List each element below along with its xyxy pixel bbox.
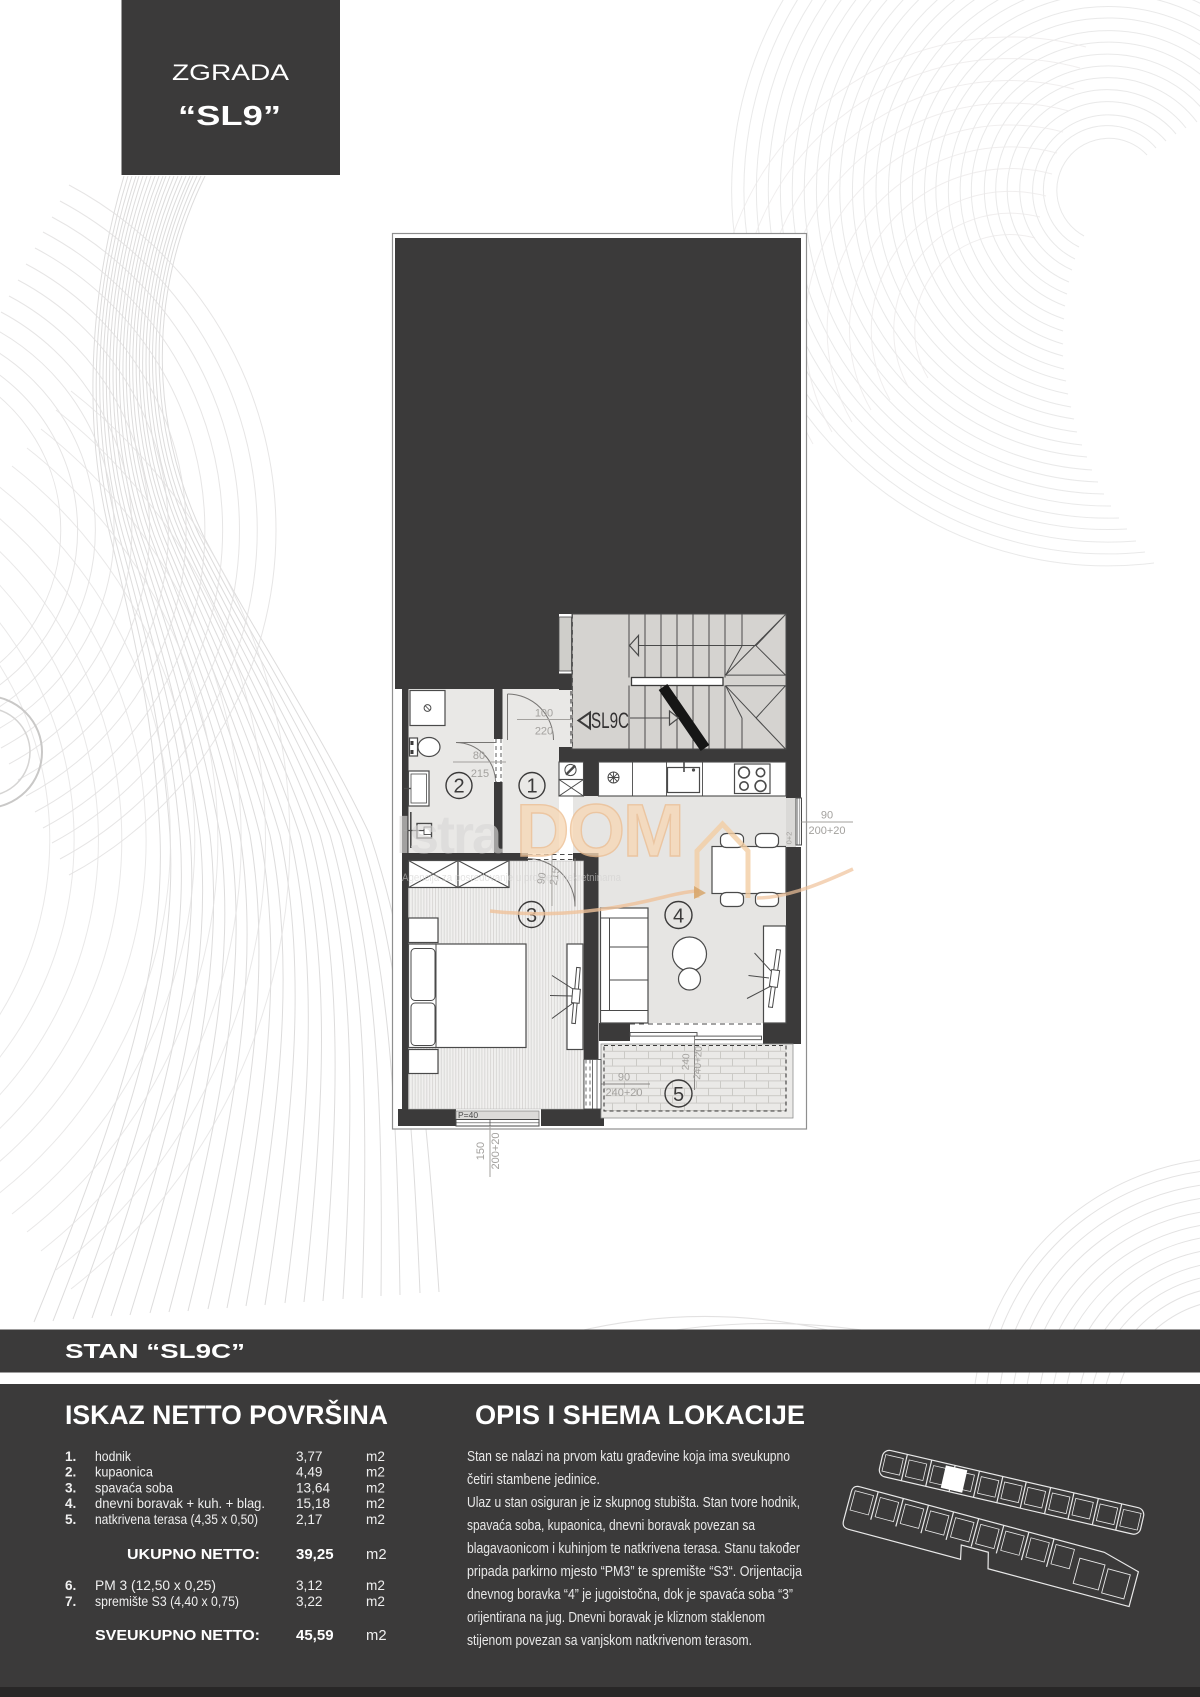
svg-text:13,64: 13,64 [296,1480,330,1495]
svg-text:45,59: 45,59 [296,1627,334,1644]
svg-text:15,18: 15,18 [296,1496,330,1511]
svg-text:5.: 5. [65,1512,76,1527]
svg-text:spavaća soba: spavaća soba [95,1480,173,1495]
svg-text:ISKAZ NETTO POVRŠINA: ISKAZ NETTO POVRŠINA [65,1399,388,1430]
svg-text:Ulaz u stan osiguran je iz sku: Ulaz u stan osiguran je iz skupnog stubi… [467,1494,800,1511]
svg-text:kupaonica: kupaonica [95,1465,153,1480]
svg-text:m2: m2 [366,1449,385,1464]
svg-text:5: 5 [673,1084,684,1106]
svg-text:STAN “SL9C”: STAN “SL9C” [65,1341,245,1363]
svg-text:Istra: Istra [396,805,503,865]
svg-text:pripada parkirno mjesto “PM3”: pripada parkirno mjesto “PM3” te spremiš… [467,1563,803,1580]
svg-text:80: 80 [473,750,485,762]
svg-text:“SL9”: “SL9” [178,100,281,131]
svg-text:dnevnog boravka “4” je jugoist: dnevnog boravka “4” je jugoistočna, dok … [467,1586,793,1603]
svg-text:39,25: 39,25 [296,1546,334,1563]
svg-text:4: 4 [673,906,684,928]
svg-text:3,12: 3,12 [296,1578,322,1593]
svg-text:stijenom povezan sa vanjskom n: stijenom povezan sa vanjskom natkrivenom… [467,1632,752,1649]
svg-text:DOM: DOM [516,789,683,872]
svg-text:4.: 4. [65,1496,76,1511]
svg-text:3,77: 3,77 [296,1449,322,1464]
svg-text:1.: 1. [65,1449,76,1464]
svg-text:7.: 7. [65,1594,76,1609]
svg-text:m2: m2 [366,1628,387,1644]
svg-text:240+20: 240+20 [692,1045,705,1080]
svg-text:ZGRADA: ZGRADA [172,60,289,85]
svg-text:OPIS I SHEMA LOKACIJE: OPIS I SHEMA LOKACIJE [475,1400,805,1430]
svg-text:2: 2 [453,776,464,798]
svg-text:2,17: 2,17 [296,1512,322,1527]
svg-text:SL9C: SL9C [591,708,629,733]
svg-text:SVEUKUPNO NETTO:: SVEUKUPNO NETTO: [95,1627,260,1644]
svg-text:200+20: 200+20 [808,825,845,837]
svg-text:Stan se nalazi na prvom katu g: Stan se nalazi na prvom katu građevine k… [467,1448,790,1465]
svg-text:m2: m2 [366,1578,385,1593]
svg-text:hodnik: hodnik [95,1449,131,1464]
svg-text:220: 220 [535,726,553,738]
svg-text:dnevni boravak + kuh. + blag.: dnevni boravak + kuh. + blag. [95,1496,265,1511]
svg-text:3: 3 [526,905,537,927]
svg-text:3.: 3. [65,1480,76,1495]
svg-text:m2: m2 [366,1547,387,1563]
svg-text:blagavaonicom i kuhinjom te na: blagavaonicom i kuhinjom te natkrivena t… [467,1540,800,1557]
svg-text:0+2: 0+2 [785,832,794,845]
svg-text:PM 3 (12,50 x 0,25): PM 3 (12,50 x 0,25) [95,1578,216,1593]
svg-text:m2: m2 [366,1594,385,1609]
svg-text:150: 150 [475,1142,487,1160]
svg-text:m2: m2 [366,1512,385,1527]
svg-text:m2: m2 [366,1465,385,1480]
svg-text:m2: m2 [366,1496,385,1511]
svg-text:P=40: P=40 [458,1110,478,1120]
svg-text:90: 90 [618,1072,630,1084]
svg-text:100: 100 [535,708,553,720]
svg-text:Agencija za posredovanje u pro: Agencija za posredovanje u prometu nekre… [402,872,622,884]
svg-text:spavaća soba, kupaonica, dnevn: spavaća soba, kupaonica, dnevni boravak … [467,1517,756,1534]
svg-text:spremište S3 (4,40 x 0,75): spremište S3 (4,40 x 0,75) [95,1594,239,1609]
svg-text:6.: 6. [65,1578,76,1593]
svg-text:m2: m2 [366,1480,385,1495]
svg-text:215: 215 [471,768,489,780]
svg-text:3,22: 3,22 [296,1594,322,1609]
svg-text:90: 90 [821,810,833,822]
svg-text:orijentirana na jug. Dnevni bo: orijentirana na jug. Dnevni boravak je k… [467,1609,765,1626]
svg-text:UKUPNO NETTO:: UKUPNO NETTO: [127,1546,260,1563]
svg-text:2.: 2. [65,1465,76,1480]
svg-text:četiri stambene jedinice.: četiri stambene jedinice. [467,1471,600,1488]
svg-text:natkrivena terasa (4,35 x 0,50: natkrivena terasa (4,35 x 0,50) [95,1512,258,1527]
svg-text:4,49: 4,49 [296,1465,322,1480]
svg-text:240+20: 240+20 [605,1087,642,1099]
svg-text:200+20: 200+20 [490,1132,502,1169]
svg-text:240: 240 [681,1053,693,1071]
